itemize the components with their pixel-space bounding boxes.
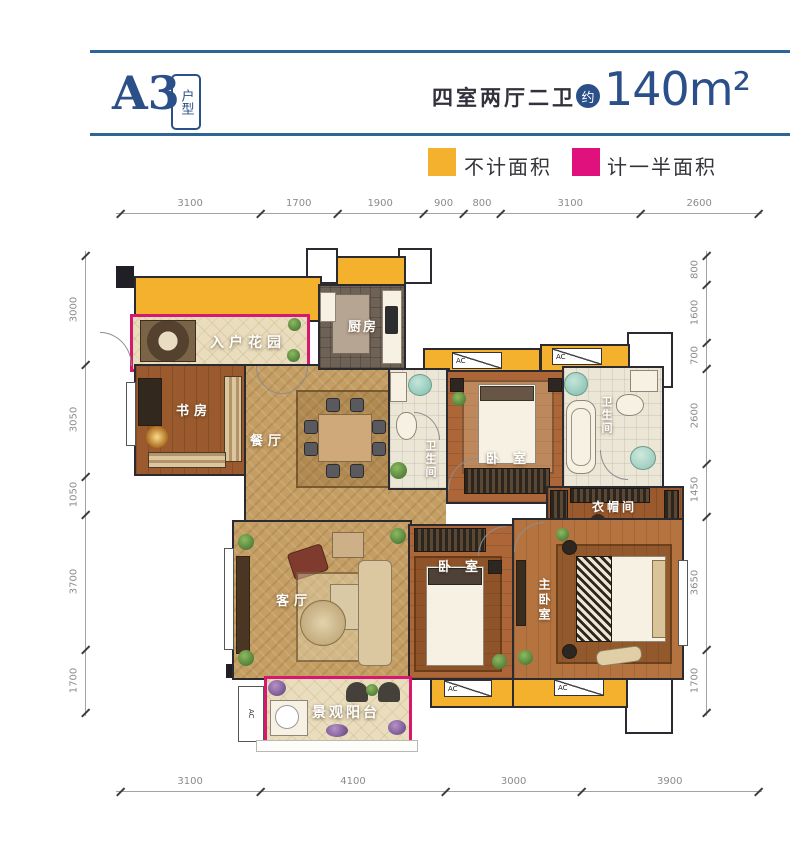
chair-icon — [350, 464, 364, 478]
lamp-icon — [146, 426, 168, 448]
dimension-label: 800 — [462, 198, 502, 209]
pillow-icon — [480, 386, 534, 401]
bathtub-inner — [571, 408, 591, 466]
dimension-label: 1600 — [690, 293, 701, 333]
label-bath-2: 卫生间 — [598, 396, 614, 435]
window — [224, 548, 234, 650]
pillow-icon — [652, 560, 666, 638]
stair-shaft — [625, 676, 673, 734]
label-living: 客厅 — [276, 590, 312, 609]
plant-icon — [366, 684, 378, 696]
window — [126, 382, 136, 446]
chair-icon — [350, 398, 364, 412]
label-balcony: 景观阳台 — [312, 702, 380, 722]
floorplan-drawing: AC AC AC AC AC 入户花园 书房 餐厅 — [0, 0, 800, 860]
balcony-chair-icon — [346, 682, 368, 702]
duvet-icon — [576, 556, 612, 642]
dimension-label: 2600 — [679, 198, 719, 209]
ac-unit-box: AC — [452, 352, 502, 369]
dimension-label: 1700 — [69, 660, 80, 700]
balcony-outer-rim — [256, 740, 418, 752]
dimension-label: 900 — [424, 198, 464, 209]
plant-icon — [268, 680, 286, 696]
plant-icon — [238, 650, 254, 666]
label-entry-garden: 入户花园 — [210, 332, 286, 352]
dimension-label: 700 — [690, 335, 701, 375]
toilet-icon — [616, 394, 644, 416]
ac-unit-box: AC — [238, 686, 264, 742]
dining-table-icon — [318, 414, 372, 462]
bookshelf-icon — [148, 452, 226, 468]
wardrobe-icon — [414, 528, 486, 552]
label-master-bedroom: 主卧室 — [536, 578, 553, 623]
dimension-line — [116, 791, 762, 792]
chair-icon — [326, 464, 340, 478]
dimension-label: 3100 — [170, 776, 210, 787]
plant-icon — [390, 528, 406, 544]
dimension-line — [85, 251, 86, 716]
dimension-label: 1700 — [690, 660, 701, 700]
label-cloakroom: 衣帽间 — [592, 498, 637, 515]
cabinet-icon — [332, 532, 364, 558]
nightstand-icon — [562, 540, 577, 555]
chair-icon — [372, 442, 386, 456]
ac-unit-box: AC — [554, 679, 604, 696]
chair-icon — [304, 420, 318, 434]
dimension-label: 3900 — [650, 776, 690, 787]
dimension-line — [706, 251, 707, 716]
label-bedroom-2: 卧室 — [438, 556, 492, 575]
sink-counter-icon — [630, 370, 658, 392]
dimension-label: 3700 — [69, 562, 80, 602]
dimension-label: 3100 — [550, 198, 590, 209]
dimension-line — [116, 213, 762, 214]
dimension-label: 3100 — [170, 198, 210, 209]
nightstand-icon — [450, 378, 464, 392]
floorplan-page: A3 户型 四室两厅二卫 约 140m² 不计面积 计一半面积 AC AC AC… — [0, 0, 800, 860]
fridge-icon — [320, 292, 336, 322]
chair-icon — [304, 442, 318, 456]
cooktop-icon — [385, 306, 398, 334]
dimension-label: 3000 — [69, 289, 80, 329]
round-rug-icon — [140, 320, 196, 362]
plant-icon — [288, 318, 301, 331]
nightstand-icon — [548, 378, 562, 392]
basin-icon — [275, 705, 299, 729]
dimension-label: 3650 — [690, 563, 701, 603]
basin-icon — [408, 374, 432, 396]
label-kitchen: 厨房 — [348, 316, 378, 335]
label-bedroom-1: 卧室 — [486, 448, 540, 467]
plant-icon — [388, 720, 406, 735]
ac-unit-box: AC — [444, 680, 492, 697]
sofa-icon — [358, 560, 392, 666]
plant-icon — [452, 392, 466, 406]
dimension-label: 3000 — [494, 776, 534, 787]
label-dining: 餐厅 — [250, 430, 286, 449]
plant-icon — [287, 349, 300, 362]
tv-panel-icon — [516, 560, 526, 626]
wall-pillar — [116, 266, 134, 288]
basin-icon — [564, 372, 588, 396]
chair-icon — [372, 420, 386, 434]
plant-icon — [326, 724, 348, 737]
dimension-label: 3050 — [69, 400, 80, 440]
sink-counter-icon — [390, 372, 407, 402]
plant-icon — [556, 528, 569, 541]
ac-unit-box: AC — [552, 348, 602, 365]
bookshelf-icon — [224, 376, 242, 462]
balcony-chair-icon — [378, 682, 400, 702]
plant-icon — [518, 650, 533, 665]
plant-icon — [492, 654, 507, 669]
dimension-label: 4100 — [333, 776, 373, 787]
dimension-label: 1700 — [279, 198, 319, 209]
label-bath-1: 卫生间 — [422, 440, 438, 479]
dimension-label: 2600 — [690, 395, 701, 435]
basin-icon — [630, 446, 656, 470]
tv-cabinet-icon — [236, 556, 250, 654]
label-study: 书房 — [176, 400, 212, 419]
dimension-label: 1050 — [69, 475, 80, 515]
dimension-label: 1900 — [360, 198, 400, 209]
nightstand-icon — [562, 644, 577, 659]
window — [678, 560, 688, 646]
plant-icon — [390, 462, 407, 479]
plant-icon — [238, 534, 254, 550]
dimension-label: 1450 — [690, 469, 701, 509]
chair-icon — [326, 398, 340, 412]
door-arc — [100, 332, 132, 366]
desk-icon — [138, 378, 162, 426]
dimension-label: 800 — [690, 249, 701, 289]
